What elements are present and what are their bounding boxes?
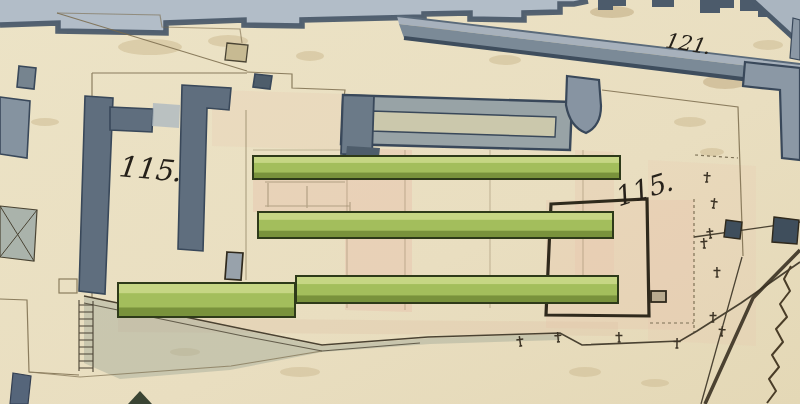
building-left-edge-top bbox=[0, 97, 30, 158]
green-building bbox=[253, 156, 620, 179]
enclosure-small-square bbox=[651, 291, 666, 302]
building-khaki-small bbox=[225, 43, 248, 62]
green-building bbox=[118, 283, 295, 317]
green-building bbox=[296, 276, 618, 303]
green-building bbox=[258, 212, 613, 238]
building-mid-small bbox=[225, 252, 243, 280]
gate-post-left bbox=[724, 220, 742, 239]
building-small-north bbox=[17, 66, 36, 89]
building-wall-fill bbox=[152, 103, 180, 128]
map-canvas: 115.115.121. bbox=[0, 0, 800, 404]
gate-post-right bbox=[772, 217, 799, 244]
building-wing-west-arm bbox=[110, 107, 153, 132]
building-dark-small bbox=[253, 74, 272, 89]
label-parcel-115-left: 115. bbox=[115, 149, 182, 188]
building-bottom-left-small bbox=[10, 373, 31, 404]
